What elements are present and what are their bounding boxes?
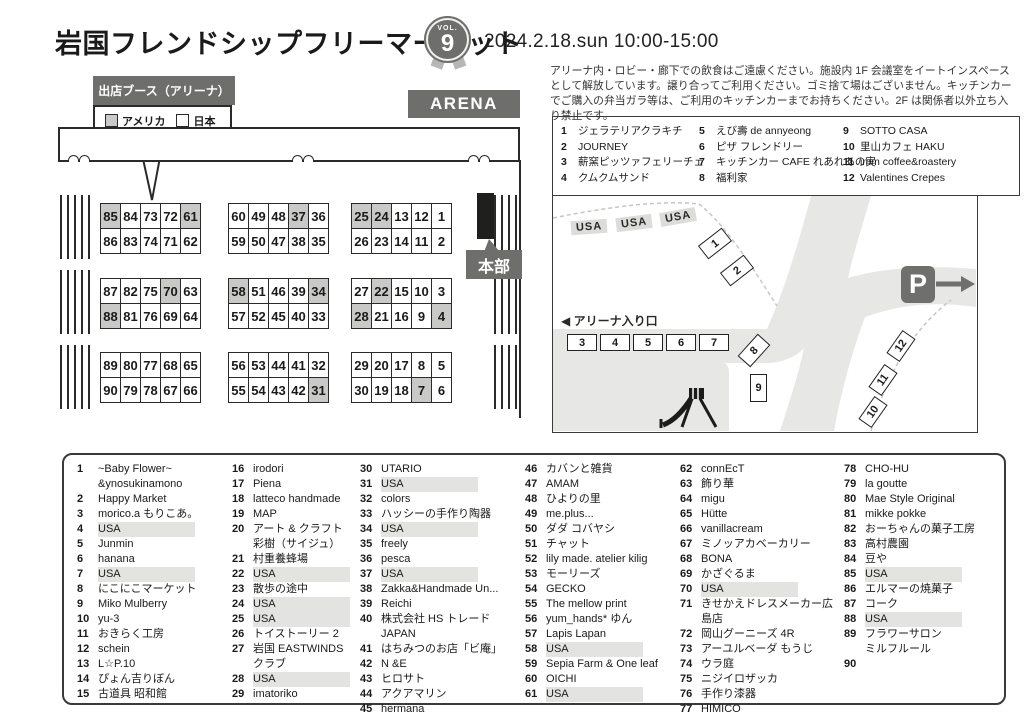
usa-swatch-icon [105,114,118,127]
usa-area-chip: USA [571,219,608,235]
v-number: 73 [680,642,701,657]
v-number: 19 [232,507,253,522]
v-number: 28 [232,672,253,687]
v-number: 25 [232,612,253,627]
booth-cell-63: 63 [181,279,201,304]
v-entry-13: 13L☆P.10 [77,657,229,672]
v-name: 古道具 昭和館 [98,687,167,702]
bleachers-icon [60,195,93,259]
v-entry-5: 5Junmin [77,537,229,552]
v-name: AMAM [546,477,579,492]
v-name: latteco handmade [253,492,340,507]
v-entry-77: 77HIMICO [680,702,842,717]
booth-cell-84: 84 [121,204,141,229]
booth-cell-6: 6 [432,378,452,403]
v-name: Happy Market [98,492,166,507]
v-number: 69 [680,567,701,582]
v-number: 36 [360,552,381,567]
v-name: ひよりの里 [546,492,601,507]
v-entry-50: 50ダダ コバヤシ [525,522,678,537]
v-entry-8: 8にこにこマーケット [77,582,229,597]
booth-cell-32: 32 [309,353,329,378]
booth-cell-14: 14 [392,229,412,254]
f-number: 5 [699,124,716,140]
booth-cell-18: 18 [392,378,412,403]
v-entry-26: 26トイストーリー 2 [232,627,358,642]
v-entry-63: 63飾り華 [680,477,842,492]
booth-cell-7: 7 [412,378,432,403]
v-name: ハッシーの手作り陶器 [381,507,491,522]
v-name: USA [253,567,350,582]
event-datetime: 2024.2.18.sun 10:00-15:00 [484,31,719,53]
v-name: Mae Style Original [865,492,955,507]
booth-cell-73: 73 [141,204,161,229]
volume-number: 9 [441,32,454,56]
v-name: にこにこマーケット [98,582,197,597]
v-entry-29: 29imatoriko [232,687,358,702]
booth-cell-39: 39 [289,279,309,304]
v-number: 59 [525,657,546,672]
f-name: SOTTO CASA [860,124,928,140]
v-name: yum_hands* ゆん [546,612,632,627]
v-entry-53: 53モーリーズ [525,567,678,582]
f-entry-9: 9SOTTO CASA [843,124,956,140]
booth-cell-38: 38 [289,229,309,254]
v-name: Lapis Lapan [546,627,606,642]
booth-cell-78: 78 [141,378,161,403]
v-number: 38 [360,582,381,597]
booth-block: 60494837365950473835 [228,203,329,254]
booth-cell-68: 68 [161,353,181,378]
v-entry-88: 88USA [844,612,999,627]
v-entry-51: 51チャット [525,537,678,552]
v-entry-41: 41はちみつのお店「ビ庵」 [360,642,523,657]
v-entry-85: 85USA [844,567,999,582]
v-number: 30 [360,462,381,477]
v-number: 35 [360,537,381,552]
booth-cell-5: 5 [432,353,452,378]
f-entry-11: 11imm coffee&roastery [843,155,956,171]
booth-cell-48: 48 [269,204,289,229]
door-icon [468,155,492,162]
booth-cell-42: 42 [289,378,309,403]
booth-cell-60: 60 [229,204,249,229]
booth-cell-55: 55 [229,378,249,403]
v-number: 74 [680,657,701,672]
v-name: la goutte [865,477,907,492]
booth-cell-33: 33 [309,304,329,329]
booth-cell-70: 70 [161,279,181,304]
v-number: 39 [360,597,381,612]
vendor-list: 1~Baby Flower~ &ynosukinamono2Happy Mark… [62,453,1006,705]
v-name: Miko Mulberry [98,597,167,612]
v-number: 87 [844,597,865,612]
v-number: 57 [525,627,546,642]
v-number: 9 [77,597,98,612]
v-entry-55: 55The mellow print [525,597,678,612]
v-entry-12: 12schein [77,642,229,657]
v-name: フラワーサロン ミルフルール [865,627,942,657]
v-number: 63 [680,477,701,492]
v-number: 29 [232,687,253,702]
v-entry-42: 42N &E [360,657,523,672]
f-number: 8 [699,171,716,187]
v-name: ミノッアカベーカリー [701,537,811,552]
v-name: 豆や [865,552,887,567]
booth-cell-64: 64 [181,304,201,329]
v-number: 47 [525,477,546,492]
booth-cell-75: 75 [141,279,161,304]
booth-cell-46: 46 [269,279,289,304]
booth-cell-77: 77 [141,353,161,378]
v-number: 52 [525,552,546,567]
booth-cell-88: 88 [101,304,121,329]
v-name: hermana [381,702,424,717]
v-entry-6: 6hanana [77,552,229,567]
arena-entrance-label: ◀ アリーナ入り口 [561,312,658,329]
v-entry-65: 65Hütte [680,507,842,522]
booth-cell-26: 26 [352,229,372,254]
v-entry-74: 74ウラ庭 [680,657,842,672]
v-entry-58: 58USA [525,642,678,657]
v-name: USA [546,687,643,702]
booth-cell-29: 29 [352,353,372,378]
booth-cell-90: 90 [101,378,121,403]
v-name: ニジイロザッカ [701,672,778,687]
v-number: 42 [360,657,381,672]
v-entry-27: 27岩国 EASTWINDS クラブ [232,642,358,672]
door-icon [292,155,316,162]
booth-cell-27: 27 [352,279,372,304]
booth-cell-41: 41 [289,353,309,378]
v-number: 3 [77,507,98,522]
booth-cell-81: 81 [121,304,141,329]
v-number: 83 [844,537,865,552]
hq-label: 本部 [466,250,522,279]
v-number: 72 [680,627,701,642]
v-number: 64 [680,492,701,507]
v-number: 70 [680,582,701,597]
v-number: 89 [844,627,865,657]
bleachers-icon [494,270,520,334]
v-name: おきらく工房 [98,627,164,642]
parking-icon: P [901,266,935,303]
booth-cell-28: 28 [352,304,372,329]
booth-cell-36: 36 [309,204,329,229]
v-number: 58 [525,642,546,657]
booth-cell-4: 4 [432,304,452,329]
v-number: 32 [360,492,381,507]
booth-cell-50: 50 [249,229,269,254]
v-entry-70: 70USA [680,582,842,597]
booth-block: 85847372618683747162 [100,203,201,254]
v-entry-52: 52lily made. atelier kilig [525,552,678,567]
booth-cell-52: 52 [249,304,269,329]
booth-cell-58: 58 [229,279,249,304]
v-entry-84: 84豆や [844,552,999,567]
v-number: 56 [525,612,546,627]
v-number: 37 [360,567,381,582]
booth-cell-31: 31 [309,378,329,403]
booth-cell-13: 13 [392,204,412,229]
arena-label: ARENA [408,90,520,118]
v-number: 5 [77,537,98,552]
booth-cell-25: 25 [352,204,372,229]
v-number: 48 [525,492,546,507]
v-number: 20 [232,522,253,552]
v-entry-48: 48ひよりの里 [525,492,678,507]
v-number: 75 [680,672,701,687]
v-number: 79 [844,477,865,492]
booth-cell-53: 53 [249,353,269,378]
v-entry-78: 78CHO-HU [844,462,999,477]
v-name: アーユルベーダ もうじ [701,642,813,657]
volume-badge: VOL. 9 [424,16,471,63]
v-number: 68 [680,552,701,567]
vendor-column: 78CHO-HU79la goutte80Mae Style Original8… [844,462,999,672]
vendor-column: 46カバンと雑貨47AMAM48ひよりの里49me.plus...50ダダ コバ… [525,462,678,702]
booth-cell-83: 83 [121,229,141,254]
booth-cell-1: 1 [432,204,452,229]
v-name: pesca [381,552,410,567]
booth-cell-37: 37 [289,204,309,229]
v-entry-89: 89フラワーサロン ミルフルール [844,627,999,657]
f-number: 12 [843,171,860,187]
f-name: Valentines Crepes [860,171,945,187]
v-name: mikke pokke [865,507,926,522]
v-entry-11: 11おきらく工房 [77,627,229,642]
booth-cell-79: 79 [121,378,141,403]
v-entry-36: 36pesca [360,552,523,567]
japan-swatch-icon [176,114,189,127]
f-name: クムクムサンド [578,171,650,187]
booth-cell-72: 72 [161,204,181,229]
v-entry-75: 75ニジイロザッカ [680,672,842,687]
v-name: アクアマリン [381,687,446,702]
f-name: ピザ フレンドリー [716,140,803,156]
v-entry-17: 17Piena [232,477,358,492]
v-name: おーちゃんの菓子工房 [865,522,975,537]
v-number: 77 [680,702,701,717]
v-entry-9: 9Miko Mulberry [77,597,229,612]
v-entry-71: 71きせかえドレスメーカー広島店 [680,597,842,627]
v-number: 76 [680,687,701,702]
booth-cell-65: 65 [181,353,201,378]
v-entry-20: 20アート & クラフト 彩樹（サイジュ） [232,522,358,552]
v-entry-69: 69かざぐるま [680,567,842,582]
f-entry-1: 1ジェラテリアクラキチ [561,124,704,140]
booth-block: 56534441325554434231 [228,352,329,403]
bleachers-icon [60,345,93,409]
v-number: 55 [525,597,546,612]
arena-top-wall [58,127,520,162]
v-number: 11 [77,627,98,642]
booth-cell-89: 89 [101,353,121,378]
v-name: N &E [381,657,407,672]
v-number: 21 [232,552,253,567]
v-name: 岩国 EASTWINDS クラブ [253,642,343,672]
v-entry-62: 62connEcT [680,462,842,477]
v-name: USA [253,597,350,612]
food-column: 9SOTTO CASA10里山カフェ HAKU11imm coffee&roas… [843,124,956,186]
v-number: 62 [680,462,701,477]
booth-cell-51: 51 [249,279,269,304]
f-name: 里山カフェ HAKU [860,140,945,156]
v-name: かざぐるま [701,567,756,582]
v-name: USA [98,567,195,582]
booth-cell-87: 87 [101,279,121,304]
v-entry-83: 83高村農園 [844,537,999,552]
booth-cell-8: 8 [412,353,432,378]
v-name: ダダ コバヤシ [546,522,615,537]
v-number: 12 [77,642,98,657]
v-name: 高村農園 [865,537,909,552]
v-number: 82 [844,522,865,537]
booth-cell-40: 40 [289,304,309,329]
f-entry-10: 10里山カフェ HAKU [843,140,956,156]
v-number: 50 [525,522,546,537]
v-number: 18 [232,492,253,507]
v-number: 26 [232,627,253,642]
v-name: カバンと雑貨 [546,462,613,477]
v-number: 46 [525,462,546,477]
booth-cell-9: 9 [412,304,432,329]
f-number: 3 [561,155,578,171]
v-entry-7: 7USA [77,567,229,582]
v-number: 2 [77,492,98,507]
v-entry-76: 76手作り漆器 [680,687,842,702]
v-number: 4 [77,522,98,537]
v-number: 53 [525,567,546,582]
f-entry-12: 12Valentines Crepes [843,171,956,187]
f-name: えび壽 de annyeong [716,124,811,140]
v-number: 66 [680,522,701,537]
f-entry-2: 2JOURNEY [561,140,704,156]
v-entry-82: 82おーちゃんの菓子工房 [844,522,999,537]
v-number: 24 [232,597,253,612]
vendor-column: 30UTARIO31USA32colors33ハッシーの手作り陶器34USA35… [360,462,523,717]
v-entry-3: 3morico.a もりこあ。 [77,507,229,522]
v-entry-30: 30UTARIO [360,462,523,477]
v-number: 43 [360,672,381,687]
v-number: 86 [844,582,865,597]
booth-cell-24: 24 [372,204,392,229]
v-name: きせかえドレスメーカー広島店 [701,597,842,627]
f-name: imm coffee&roastery [860,155,956,171]
booth-block: 87827570638881766964 [100,278,201,329]
v-entry-68: 68BONA [680,552,842,567]
booth-cell-71: 71 [161,229,181,254]
booth-cell-80: 80 [121,353,141,378]
vendor-column: 62connEcT63飾り華64migu65Hütte66vanillacrea… [680,462,842,717]
v-number: 10 [77,612,98,627]
v-name: BONA [701,552,732,567]
booth-cell-62: 62 [181,229,201,254]
booth-cell-34: 34 [309,279,329,304]
v-number: 22 [232,567,253,582]
v-name: Hütte [701,507,727,522]
booth-cell-21: 21 [372,304,392,329]
v-name: MAP [253,507,277,522]
v-number: 14 [77,672,98,687]
booth-cell-15: 15 [392,279,412,304]
booth-cell-82: 82 [121,279,141,304]
v-entry-59: 59Sepia Farm & One leaf [525,657,678,672]
v-name: Piena [253,477,281,492]
map-spot-4: 4 [600,334,630,351]
v-name: lily made. atelier kilig [546,552,647,567]
v-entry-4: 4USA [77,522,229,537]
v-entry-33: 33ハッシーの手作り陶器 [360,507,523,522]
v-name: 岡山グーニーズ 4R [701,627,795,642]
v-name: Zakka&Handmade Un... [381,582,498,597]
vendor-column: 1~Baby Flower~ &ynosukinamono2Happy Mark… [77,462,229,702]
v-name: vanillacream [701,522,763,537]
booth-cell-47: 47 [269,229,289,254]
v-number: 40 [360,612,381,642]
v-entry-22: 22USA [232,567,358,582]
map-spot-7: 7 [699,334,729,351]
v-entry-43: 43ヒロサト [360,672,523,687]
outdoor-map: USA USA USA ◀ アリーナ入り口 1 2 3 4 5 6 7 8 9 … [552,195,978,433]
v-entry-81: 81mikke pokke [844,507,999,522]
v-number: 31 [360,477,381,492]
v-number: 15 [77,687,98,702]
booth-cell-19: 19 [372,378,392,403]
v-entry-16: 16irodori [232,462,358,477]
v-name: USA [381,522,478,537]
v-name: GECKO [546,582,586,597]
v-name: USA [546,642,643,657]
v-name: Junmin [98,537,133,552]
f-number: 10 [843,140,860,156]
v-entry-54: 54GECKO [525,582,678,597]
v-entry-24: 24USA [232,597,358,612]
v-entry-2: 2Happy Market [77,492,229,507]
booth-cell-30: 30 [352,378,372,403]
vendor-column: 16irodori17Piena18latteco handmade19MAP2… [232,462,358,702]
f-number: 2 [561,140,578,156]
v-number: 45 [360,702,381,717]
booth-cell-74: 74 [141,229,161,254]
v-name: コーク [865,597,898,612]
hq-booth [477,193,494,239]
v-number: 44 [360,687,381,702]
v-entry-40: 40株式会社 HS トレード JAPAN [360,612,523,642]
v-number: 84 [844,552,865,567]
flyer-page: 岩国フレンドシップフリーマーケット VOL. 9 2024.2.18.sun 1… [0,0,1024,724]
v-number: 41 [360,642,381,657]
booth-cell-23: 23 [372,229,392,254]
v-name: エルマーの焼菓子 [865,582,953,597]
v-name: USA [865,612,962,627]
v-name: colors [381,492,410,507]
map-spot-3: 3 [567,334,597,351]
v-entry-32: 32colors [360,492,523,507]
v-number: 1 [77,462,98,492]
f-number: 4 [561,171,578,187]
v-entry-21: 21村重養蜂場 [232,552,358,567]
v-name: Reichi [381,597,412,612]
v-entry-38: 38Zakka&Handmade Un... [360,582,523,597]
bleachers-icon [60,270,93,334]
booth-cell-43: 43 [269,378,289,403]
v-entry-44: 44アクアマリン [360,687,523,702]
v-number: 8 [77,582,98,597]
v-entry-18: 18latteco handmade [232,492,358,507]
map-spot-9: 9 [750,374,767,402]
booth-cell-16: 16 [392,304,412,329]
